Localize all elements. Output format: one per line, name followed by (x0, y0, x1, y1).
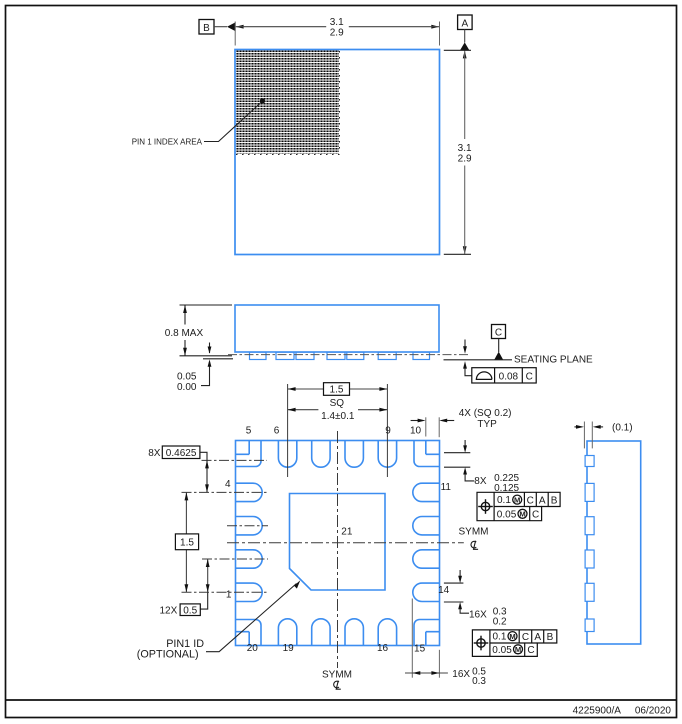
svg-text:C: C (532, 510, 539, 521)
svg-text:A: A (461, 18, 468, 29)
svg-text:1.5: 1.5 (330, 385, 344, 396)
svg-text:5: 5 (246, 426, 252, 437)
svg-text:SYMM: SYMM (322, 670, 352, 681)
svg-text:B: B (547, 632, 554, 643)
svg-text:B: B (551, 495, 558, 506)
svg-text:0.2: 0.2 (493, 616, 507, 627)
svg-text:21: 21 (341, 526, 353, 537)
svg-text:16: 16 (377, 643, 389, 654)
svg-text:SEATING PLANE: SEATING PLANE (514, 355, 593, 366)
svg-text:C: C (495, 328, 502, 339)
svg-text:1.4±0.1: 1.4±0.1 (321, 411, 355, 422)
svg-text:0.1: 0.1 (497, 495, 511, 506)
svg-text:12X: 12X (160, 605, 178, 616)
svg-text:A: A (539, 495, 546, 506)
svg-text:0.3: 0.3 (472, 676, 486, 687)
svg-text:0.05: 0.05 (177, 372, 197, 383)
svg-text:0.00: 0.00 (177, 382, 197, 393)
svg-text:4: 4 (225, 479, 231, 490)
svg-text:0.05: 0.05 (497, 509, 517, 520)
svg-text:10: 10 (410, 426, 422, 437)
svg-text:C: C (522, 632, 529, 643)
svg-text:14: 14 (438, 585, 450, 596)
svg-text:4225900/A 06/2020: 4225900/A 06/2020 (573, 706, 672, 717)
svg-text:0.5: 0.5 (183, 605, 197, 616)
svg-text:M: M (519, 510, 525, 519)
svg-text:4X (SQ 0.2): 4X (SQ 0.2) (459, 408, 512, 419)
svg-text:16X: 16X (469, 610, 487, 621)
svg-text:M: M (514, 495, 520, 504)
svg-text:(OPTIONAL): (OPTIONAL) (137, 648, 199, 660)
svg-text:M: M (515, 645, 521, 654)
svg-text:1: 1 (226, 590, 232, 601)
svg-text:C: C (527, 495, 534, 506)
svg-text:1.5: 1.5 (180, 538, 194, 549)
svg-text:0.08: 0.08 (499, 371, 519, 382)
svg-text:SQ: SQ (330, 398, 345, 409)
svg-text:0.4625: 0.4625 (166, 448, 197, 459)
svg-text:2.9: 2.9 (458, 154, 472, 165)
svg-text:C: C (526, 371, 533, 382)
svg-text:M: M (509, 632, 515, 641)
svg-text:TYP: TYP (477, 419, 497, 430)
svg-text:8X: 8X (148, 448, 161, 459)
svg-text:C: C (527, 645, 534, 656)
svg-text:8X: 8X (474, 476, 487, 487)
svg-text:SYMM: SYMM (459, 526, 489, 537)
svg-text:9: 9 (385, 426, 391, 437)
svg-text:6: 6 (274, 426, 280, 437)
svg-text:11: 11 (441, 482, 452, 493)
svg-text:A: A (534, 632, 541, 643)
svg-text:(0.1): (0.1) (612, 423, 633, 434)
svg-text:15: 15 (414, 644, 426, 655)
svg-text:PIN 1 INDEX AREA: PIN 1 INDEX AREA (132, 138, 203, 147)
svg-text:0.8 MAX: 0.8 MAX (165, 328, 204, 339)
svg-text:3.1: 3.1 (330, 17, 344, 28)
svg-text:3.1: 3.1 (458, 143, 472, 154)
svg-text:20: 20 (247, 643, 259, 654)
svg-text:19: 19 (283, 643, 295, 654)
svg-text:0.1: 0.1 (493, 632, 507, 643)
svg-text:0.05: 0.05 (492, 645, 512, 656)
svg-text:2.9: 2.9 (330, 27, 344, 38)
svg-text:B: B (203, 23, 210, 34)
svg-text:16X: 16X (452, 669, 470, 680)
